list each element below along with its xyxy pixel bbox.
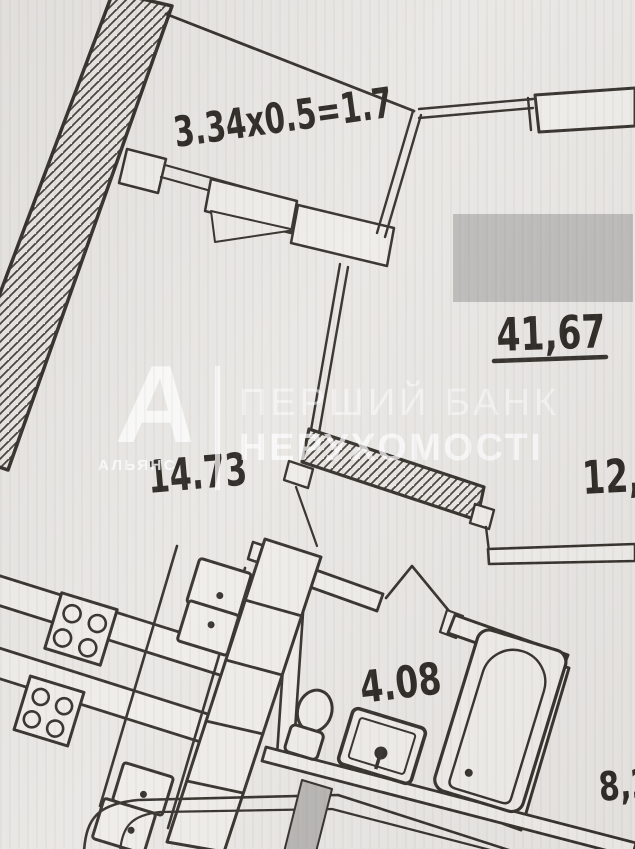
room-right-bottom-wall — [488, 544, 635, 564]
censor-box — [453, 214, 633, 302]
bathtub — [432, 627, 569, 815]
svg-text:41,67: 41,67 — [495, 304, 606, 362]
svg-text:4.08: 4.08 — [357, 654, 444, 714]
svg-text:14.73: 14.73 — [145, 444, 249, 505]
balcony-calc-label: 3.34x0.5=1.7 — [171, 77, 396, 157]
total-area-label: 41,67 — [495, 304, 606, 362]
balcony-exterior-wall — [0, 0, 172, 470]
balcony-window-frame-1 — [119, 149, 166, 193]
balcony-side-window — [377, 111, 421, 237]
partition-wall — [311, 264, 348, 433]
svg-text:3.34x0.5=1.7: 3.34x0.5=1.7 — [171, 77, 396, 157]
floor-plan-drawing: 3.34x0.5=1.7 41,67 14.73 12,9 4.08 8,2 — [0, 0, 635, 849]
wall-connector — [486, 527, 489, 551]
svg-text:8,2: 8,2 — [597, 760, 635, 811]
svg-text:12,9: 12,9 — [581, 448, 635, 505]
kitchen-area-label: 8,2 — [597, 760, 635, 811]
room-main-label: 14.73 — [145, 444, 249, 505]
door-leaf — [296, 487, 317, 546]
floorplan-photo: 3.34x0.5=1.7 41,67 14.73 12,9 4.08 8,2 А… — [0, 0, 635, 849]
shaded-wall-strip — [284, 780, 332, 849]
bathroom-door-swing — [386, 566, 449, 611]
exterior-wall-top-thin — [419, 98, 533, 130]
balcony-window-frame-3 — [291, 205, 394, 266]
bathroom-area-label: 4.08 — [357, 654, 444, 714]
interior-wall-hatched — [302, 429, 484, 520]
exterior-wall-top-thick — [535, 88, 635, 132]
door-jamb-right — [470, 504, 494, 529]
room-right-label: 12,9 — [581, 448, 635, 505]
